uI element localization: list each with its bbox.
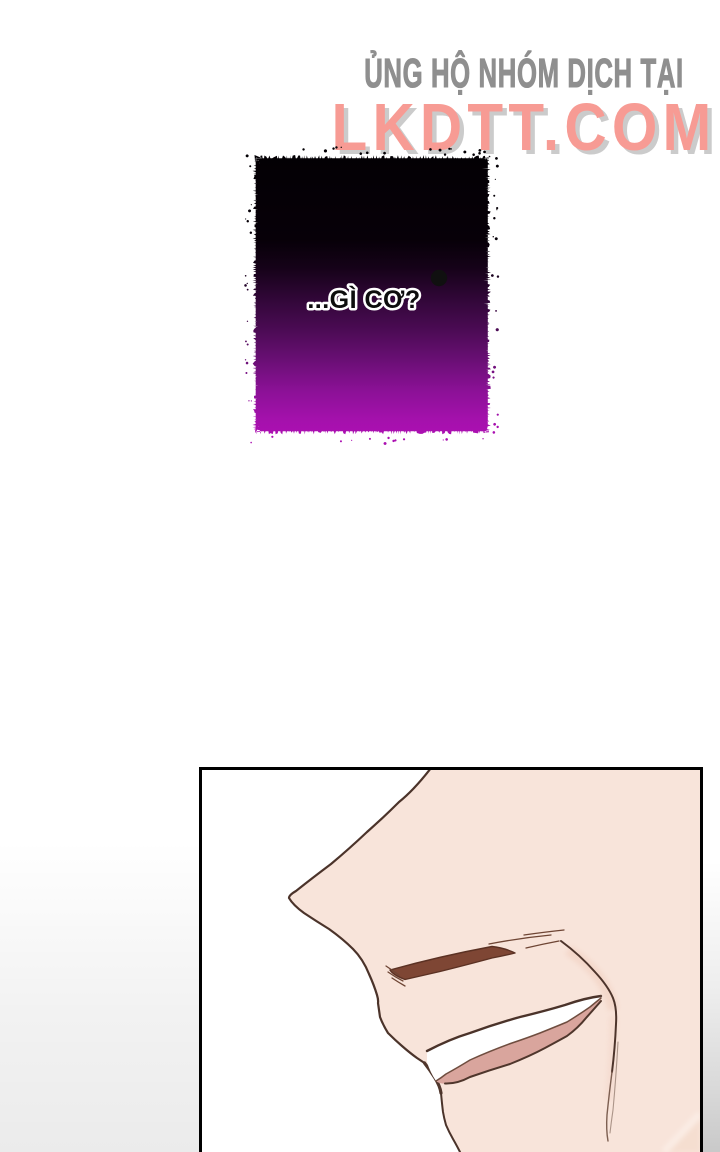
svg-text:...GÌ CƠ?: ...GÌ CƠ? (307, 285, 420, 314)
